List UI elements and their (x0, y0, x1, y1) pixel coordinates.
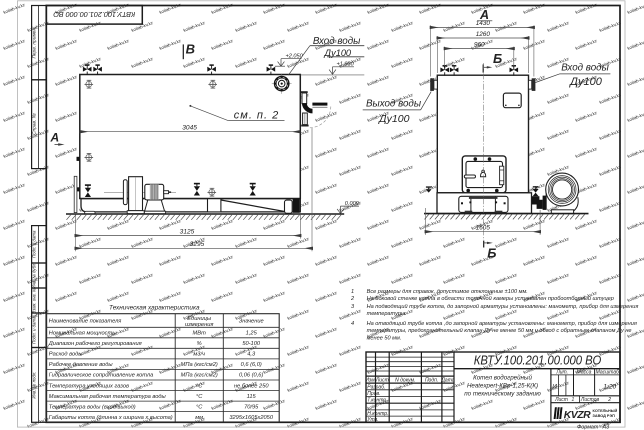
svg-text:На отводящий трубе котла ,до з: На отводящий трубе котла ,до запорной ар… (367, 320, 637, 327)
svg-text:Дата: Дата (440, 378, 454, 384)
svg-text:Техническая характеристика: Техническая характеристика (109, 305, 200, 312)
svg-text:Единицы: Единицы (187, 316, 212, 322)
svg-text:В: В (186, 42, 195, 57)
svg-text:Инв. № подл.: Инв. № подл. (32, 371, 37, 398)
svg-text:°С: °С (196, 404, 203, 410)
svg-text:МПа (кгс/см2): МПа (кгс/см2) (181, 373, 218, 379)
svg-text:КВТУ.100.201.00.000 ВО: КВТУ.100.201.00.000 ВО (474, 353, 602, 368)
svg-text:70/95: 70/95 (244, 404, 259, 410)
svg-text:Подп. и дата: Подп. и дата (32, 230, 37, 258)
svg-text:Н.контр.: Н.контр. (367, 411, 388, 417)
svg-text:Подп.: Подп. (425, 378, 438, 384)
svg-text:Лист: Лист (375, 378, 389, 384)
svg-text:Диапазон рабочего регулировани: Диапазон рабочего регулирования (48, 341, 142, 347)
svg-text:°С: °С (196, 383, 203, 389)
svg-text:Масса: Масса (577, 369, 592, 375)
svg-text:Б: Б (493, 51, 502, 66)
svg-text:1605: 1605 (476, 225, 491, 232)
svg-text:Температура воды (вход/выход): Температура воды (вход/выход) (49, 404, 136, 410)
svg-text:Вход воды: Вход воды (561, 63, 609, 74)
svg-text:КОТЕЛЬНЫЙ: КОТЕЛЬНЫЙ (593, 409, 618, 413)
svg-text:Наименование показателя: Наименование показателя (49, 319, 122, 325)
svg-text:по техническому заданию: по техническому заданию (464, 390, 541, 397)
svg-text:МПа (кгс/см2): МПа (кгс/см2) (181, 362, 218, 368)
svg-text:4,3: 4,3 (247, 352, 256, 358)
svg-text:Ду100: Ду100 (378, 113, 409, 125)
svg-text:МВт: МВт (193, 331, 207, 337)
svg-text:Подп. и дата: Подп. и дата (32, 316, 37, 344)
svg-text:мм: мм (195, 415, 203, 421)
svg-text:Лит.: Лит. (555, 369, 568, 375)
svg-text:Heatexpert-КВр-1,25-К(К): Heatexpert-КВр-1,25-К(К) (467, 383, 538, 390)
svg-text:1260: 1260 (476, 31, 491, 38)
svg-text:2: 2 (607, 397, 611, 403)
svg-text:температуры.: температуры. (367, 311, 407, 317)
svg-text:Справ. №: Справ. № (32, 113, 38, 135)
svg-text:Рабочее давление воды: Рабочее давление воды (49, 362, 114, 368)
svg-text:Инв. № дубл.: Инв. № дубл. (32, 263, 37, 289)
svg-text:3295х1605х2050: 3295х1605х2050 (229, 415, 273, 421)
svg-text:Номинальная мощность: Номинальная мощность (49, 331, 115, 337)
svg-text:1430: 1430 (476, 20, 491, 27)
svg-text:50-100: 50-100 (242, 341, 261, 347)
svg-text:Взам. инв. №: Взам. инв. № (32, 287, 37, 313)
svg-text:Выход воды: Выход воды (366, 98, 422, 109)
svg-text:А: А (50, 130, 60, 144)
svg-text:N докум.: N докум. (395, 378, 415, 384)
svg-text:+1.930: +1.930 (337, 62, 355, 68)
svg-text:Пров.: Пров. (367, 391, 380, 397)
svg-text:0,06 (0,6): 0,06 (0,6) (239, 373, 263, 379)
svg-text:Т.контр.: Т.контр. (367, 398, 387, 404)
svg-text:КВТУ.100.201.00.000 ВО: КВТУ.100.201.00.000 ВО (53, 10, 135, 19)
svg-text:температуры, предохранительный: температуры, предохранительный клапан Ду… (367, 327, 632, 334)
svg-text:1: 1 (351, 289, 354, 295)
svg-text:Котел водогрейный: Котел водогрейный (473, 374, 532, 381)
svg-text:Разраб.: Разраб. (367, 384, 385, 390)
svg-text:Утв.: Утв. (367, 417, 378, 423)
svg-text:Листов: Листов (580, 397, 600, 403)
svg-text:Расход воды: Расход воды (49, 352, 83, 358)
svg-text:Температура уходящих газов: Температура уходящих газов (49, 383, 129, 389)
svg-text:не более 250: не более 250 (234, 383, 270, 389)
svg-text:Значение: Значение (239, 319, 264, 325)
svg-text:Перв. примен.: Перв. примен. (32, 27, 38, 59)
svg-text:0,6 (6,0): 0,6 (6,0) (241, 362, 262, 368)
svg-text:Масштаб: Масштаб (596, 369, 620, 375)
svg-text:Формат: Формат (577, 424, 599, 430)
svg-text:960: 960 (474, 41, 485, 48)
svg-text:На подводящий трубе котла, д: На подводящий трубе котла, до запорной а… (367, 303, 639, 310)
svg-text:ЗАВОД РЭП: ЗАВОД РЭП (593, 414, 616, 418)
svg-text:Гидравлическое сопротивление к: Гидравлическое сопротивление котла (49, 373, 154, 379)
svg-text:измерения: измерения (185, 322, 213, 328)
svg-text:1,25: 1,25 (246, 331, 258, 337)
svg-text:0.000: 0.000 (345, 201, 360, 207)
svg-text:Максимальная рабочая температу: Максимальная рабочая температура воды (49, 394, 167, 400)
svg-text:3045: 3045 (182, 125, 197, 132)
svg-text:Б: Б (487, 246, 496, 261)
svg-text:менее 50 мм.: менее 50 мм. (367, 336, 402, 342)
svg-text:+2.050: +2.050 (286, 54, 304, 60)
svg-text:115: 115 (247, 394, 257, 400)
svg-text:3125: 3125 (180, 228, 195, 235)
svg-text:°С: °С (196, 394, 203, 400)
svg-text:%: % (197, 341, 202, 347)
svg-text:На боковой стенке котла в обла: На боковой стенке котла в области топочн… (367, 295, 614, 302)
svg-text:3295: 3295 (190, 241, 205, 248)
svg-text:Изм.: Изм. (365, 378, 376, 384)
svg-text:1: 1 (572, 397, 575, 403)
svg-text:KVZR: KVZR (564, 410, 591, 421)
svg-text:4: 4 (351, 321, 354, 327)
svg-text:А3: А3 (602, 424, 610, 430)
svg-text:м3/ч: м3/ч (193, 352, 205, 358)
svg-text:1:20: 1:20 (603, 383, 616, 390)
svg-text:Лист: Лист (554, 397, 568, 403)
svg-text:Все размеры для справок, допус: Все размеры для справок, допустимое откл… (367, 289, 528, 295)
svg-text:см. п. 2: см. п. 2 (234, 109, 279, 121)
svg-text:Габариты котла (длинна х ширин: Габариты котла (длинна х ширина х высота… (49, 415, 173, 421)
svg-text:И: И (552, 383, 557, 390)
svg-text:Ду100: Ду100 (568, 76, 603, 88)
